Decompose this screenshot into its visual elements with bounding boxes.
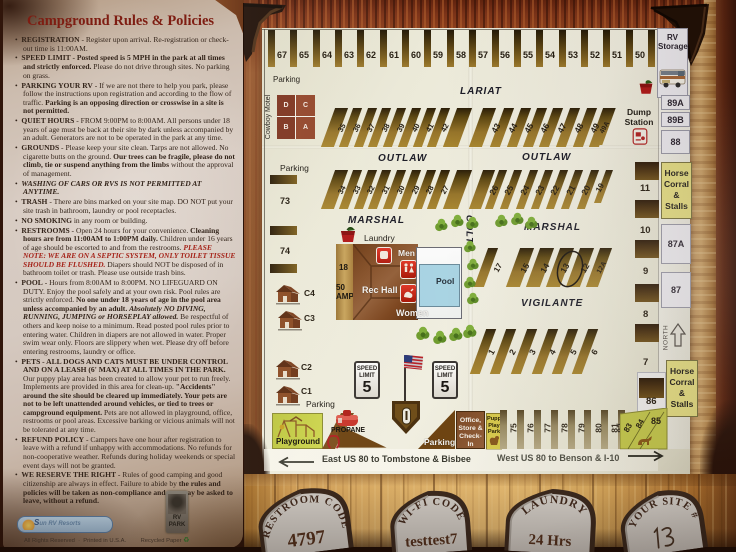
svg-text:24 Hrs: 24 Hrs bbox=[528, 532, 572, 550]
